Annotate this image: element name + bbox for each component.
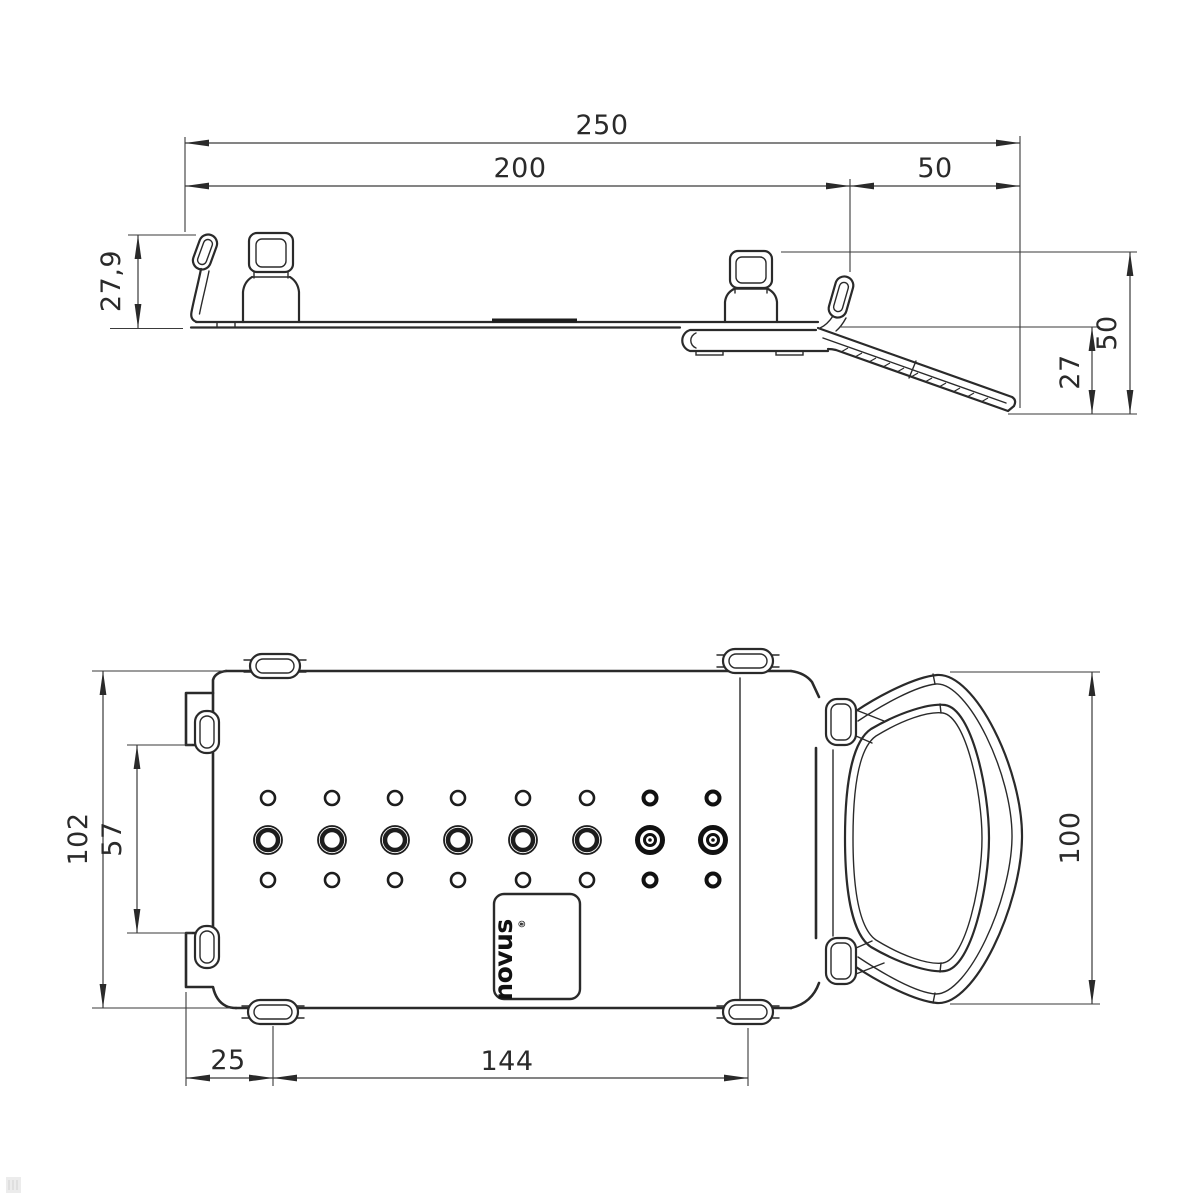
ring-hole-edge [845, 705, 989, 972]
dim-label-57: 57 [97, 821, 128, 856]
large-holes [254, 826, 601, 854]
plate-right-edge [791, 671, 819, 1008]
rear-pin-stem [820, 316, 846, 331]
drawing-svg: 250 200 50 27,9 50 27 [0, 0, 1200, 1200]
side-view [190, 232, 1015, 411]
hole-grid [254, 791, 726, 887]
ring-hole-inner-offset [853, 713, 982, 964]
bar-tab-left [696, 351, 723, 355]
logo-registered-mark: ® [518, 920, 528, 929]
dim-label-100: 100 [1055, 811, 1086, 864]
dim-label-144: 144 [480, 1046, 533, 1077]
bar-left-end-inner [691, 333, 696, 348]
logo-text: novus [489, 919, 518, 1000]
d-ring-handle [833, 674, 1022, 1003]
arm-mid-line [823, 338, 1006, 403]
technical-drawing-page: 250 200 50 27,9 50 27 [0, 0, 1200, 1200]
dim-label-102: 102 [63, 812, 94, 865]
plate-left-edge [213, 671, 226, 927]
right-bolt-base [725, 289, 777, 322]
dim-label-200: 200 [493, 153, 546, 184]
ring-bosses [826, 699, 856, 984]
bar-tab-right [776, 351, 803, 355]
dim-label-250: 250 [575, 110, 628, 141]
plan-view: novus ® [186, 649, 1022, 1024]
front-stop-clip [190, 232, 219, 272]
dim-label-27-9: 27,9 [96, 250, 127, 312]
left-bolt-base [243, 277, 299, 322]
right-bolt [725, 251, 777, 322]
rear-pin [827, 274, 856, 319]
logo-plaque: novus ® [489, 894, 580, 1001]
dim-label-50-vertical: 50 [1092, 315, 1123, 350]
tab-bottom-left [242, 1000, 304, 1024]
right-bolt-neck [733, 288, 769, 293]
tab-bottom-right [717, 1000, 779, 1024]
dim-label-50-horizontal: 50 [917, 153, 952, 184]
ring-part-lines [933, 674, 941, 1003]
clip-stem-right [200, 271, 210, 314]
tab-top-left [244, 654, 306, 678]
arm-hatching [841, 348, 988, 402]
dim-label-27: 27 [1055, 354, 1086, 389]
left-slot-pills [195, 711, 219, 968]
diagonal-ring-arm [818, 328, 1015, 411]
threaded-holes [638, 792, 726, 887]
rear-bracket-bar [682, 330, 828, 355]
tab-top-right [717, 649, 779, 673]
dim-label-25: 25 [210, 1045, 245, 1076]
watermark-square [6, 1177, 21, 1193]
left-bolt [243, 233, 299, 322]
